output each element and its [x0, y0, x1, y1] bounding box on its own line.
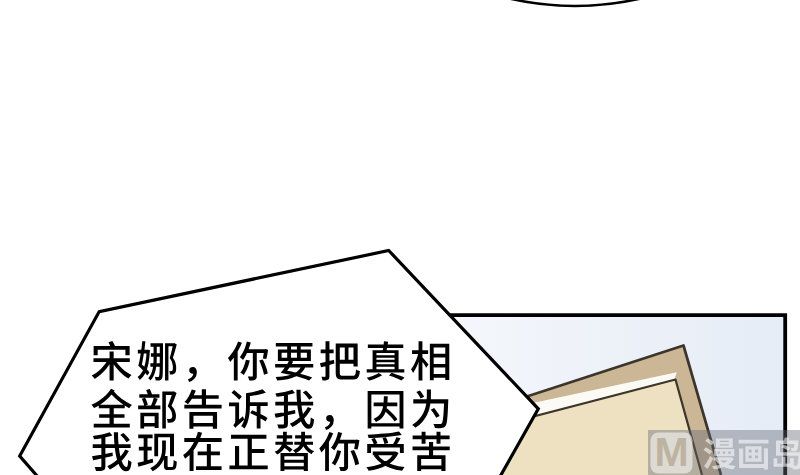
svg-text:M: M	[654, 429, 688, 475]
